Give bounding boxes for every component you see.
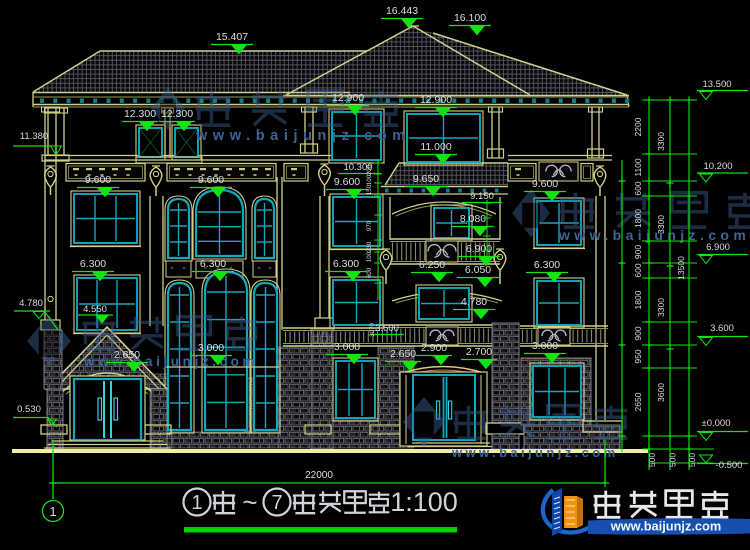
- svg-text:12.900: 12.900: [420, 94, 452, 106]
- svg-text:100: 100: [366, 251, 373, 262]
- svg-text:13500: 13500: [676, 256, 686, 280]
- svg-text:200: 200: [366, 164, 373, 175]
- svg-text:3.600: 3.600: [710, 323, 734, 334]
- svg-text:2.700: 2.700: [466, 346, 492, 358]
- svg-text:6.300: 6.300: [200, 258, 226, 270]
- svg-text:9.150: 9.150: [470, 191, 494, 202]
- svg-text:10.200: 10.200: [703, 161, 732, 172]
- svg-text:900: 900: [633, 245, 643, 259]
- svg-text:500: 500: [687, 453, 697, 467]
- svg-text:www.baijunjz.com: www.baijunjz.com: [451, 445, 619, 460]
- svg-text:1800: 1800: [633, 209, 643, 228]
- svg-text:9.600: 9.600: [532, 178, 558, 190]
- svg-text:12.300: 12.300: [161, 108, 193, 120]
- svg-text:13.500: 13.500: [702, 79, 731, 90]
- svg-text:1: 1: [191, 492, 202, 514]
- svg-text:1100: 1100: [633, 158, 643, 177]
- svg-text:12.900: 12.900: [332, 92, 364, 104]
- svg-text:www.baijunjz.com: www.baijunjz.com: [83, 354, 258, 369]
- svg-text:-0.500: -0.500: [716, 460, 743, 471]
- svg-text:1: 1: [49, 504, 56, 519]
- svg-text:4.550: 4.550: [83, 304, 107, 315]
- svg-text:6.250: 6.250: [419, 259, 445, 271]
- svg-text:9.600: 9.600: [198, 174, 224, 186]
- svg-text:230: 230: [366, 241, 373, 252]
- svg-text:4.780: 4.780: [19, 298, 43, 309]
- svg-text:4.780: 4.780: [461, 296, 487, 308]
- svg-text:2.650: 2.650: [390, 348, 416, 360]
- svg-text:2200: 2200: [633, 117, 643, 136]
- svg-text:9.650: 9.650: [413, 173, 439, 185]
- svg-text:600: 600: [633, 263, 643, 277]
- svg-text:1:100: 1:100: [390, 487, 458, 517]
- svg-text:8.080: 8.080: [460, 213, 486, 225]
- svg-text:600: 600: [366, 267, 373, 278]
- svg-text:3070: 3070: [369, 323, 376, 337]
- svg-text:3.000: 3.000: [198, 342, 224, 354]
- svg-text:500: 500: [668, 453, 678, 467]
- svg-text:16.443: 16.443: [386, 5, 418, 17]
- svg-text:~: ~: [242, 487, 257, 517]
- svg-text:0.530: 0.530: [17, 404, 41, 415]
- svg-text:22000: 22000: [305, 470, 333, 481]
- svg-text:6.300: 6.300: [80, 258, 106, 270]
- svg-text:±0.000: ±0.000: [702, 418, 731, 429]
- svg-text:3300: 3300: [656, 215, 666, 234]
- svg-text:9.600: 9.600: [334, 176, 360, 188]
- svg-text:600: 600: [633, 181, 643, 195]
- svg-text:3.000: 3.000: [334, 341, 360, 353]
- svg-text:16.100: 16.100: [454, 12, 486, 24]
- svg-text:900: 900: [633, 326, 643, 340]
- svg-text:6.050: 6.050: [465, 264, 491, 276]
- svg-text:6.300: 6.300: [534, 259, 560, 271]
- svg-text:950: 950: [633, 349, 643, 363]
- svg-text:1800: 1800: [633, 290, 643, 309]
- svg-text:6.900: 6.900: [466, 243, 492, 255]
- svg-text:150: 150: [366, 184, 373, 195]
- svg-text:12.300: 12.300: [124, 108, 156, 120]
- svg-text:2.900: 2.900: [421, 342, 447, 354]
- svg-text:2.650: 2.650: [114, 349, 140, 361]
- svg-text:3300: 3300: [656, 298, 666, 317]
- svg-text:100: 100: [366, 174, 373, 185]
- svg-text:2650: 2650: [633, 392, 643, 411]
- svg-text:3.000: 3.000: [532, 340, 558, 352]
- svg-text:3.600: 3.600: [375, 323, 399, 334]
- svg-text:500: 500: [647, 453, 657, 467]
- svg-text:970: 970: [366, 220, 373, 231]
- svg-text:9.600: 9.600: [85, 174, 111, 186]
- svg-text:3300: 3300: [656, 132, 666, 151]
- svg-text:3600: 3600: [656, 383, 666, 402]
- svg-text:15.407: 15.407: [216, 31, 248, 43]
- svg-text:www.baijunjz.com: www.baijunjz.com: [195, 128, 411, 144]
- svg-text:11.000: 11.000: [420, 141, 451, 153]
- svg-text:6.900: 6.900: [706, 242, 730, 253]
- svg-text:11.380: 11.380: [20, 131, 48, 142]
- svg-text:7: 7: [271, 492, 282, 514]
- svg-text:www.baijunjz.com: www.baijunjz.com: [610, 519, 721, 534]
- svg-text:6.300: 6.300: [333, 258, 359, 270]
